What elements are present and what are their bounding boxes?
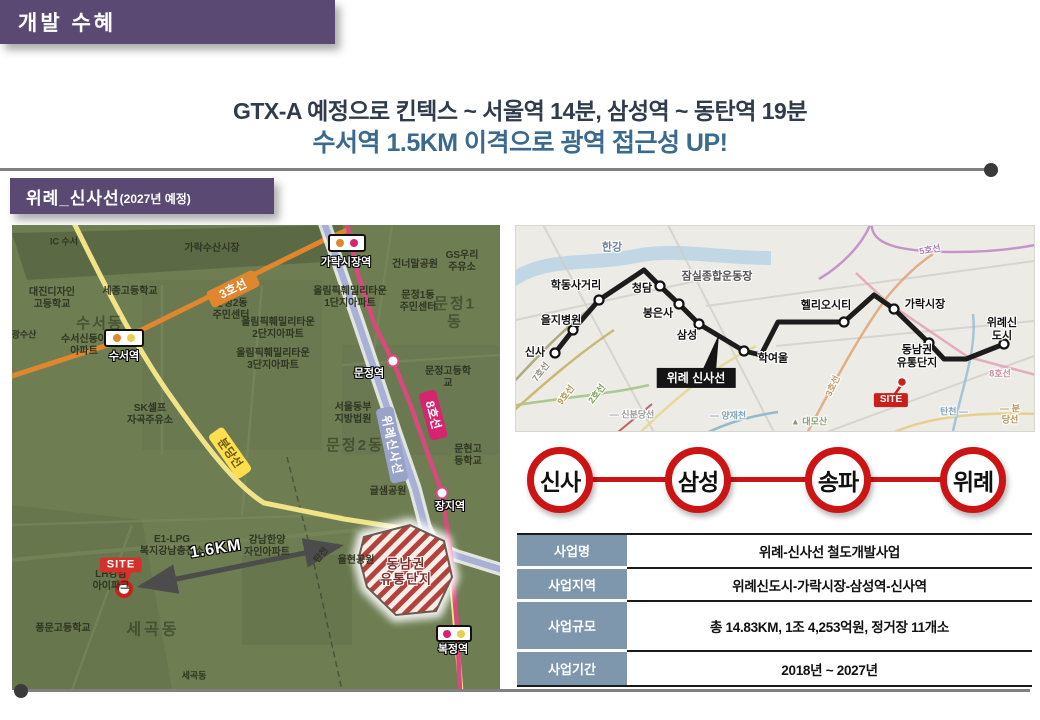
station-line-diagram: 신사 삼성 송파 위례 (515, 446, 1035, 518)
station-node-songpa: 송파 (805, 447, 871, 513)
top-divider (0, 168, 992, 171)
callout-arrow (702, 334, 719, 371)
top-divider-dot (984, 163, 998, 177)
table-row: 사업규모 총 14.83KM, 1조 4,253억원, 정거장 11개소 (517, 602, 1032, 652)
bottom-divider (14, 689, 1030, 692)
line-color-dot (457, 630, 465, 638)
line-color-dot (336, 239, 344, 247)
sub-banner-title: 위례_신사선 (26, 184, 120, 209)
station-badge (328, 234, 366, 252)
subway-route-map: 한강학동사거리을지병원신사청담봉은사삼성학여울잠실종합운동장헬리오시티가락시장위… (515, 225, 1035, 432)
station-badge (104, 329, 144, 347)
table-row: 사업명 위례-신사선 철도개발사업 (517, 535, 1032, 569)
table-row-label: 사업명 (517, 535, 627, 569)
station-connector-line (560, 477, 973, 482)
station-node-samseong: 삼성 (665, 447, 731, 513)
table-row-label: 사업지역 (517, 569, 627, 602)
table-row: 사업지역 위례신도시-가락시장-삼성역-신사역 (517, 569, 1032, 602)
sub-banner-subtitle: (2027년 예정) (120, 190, 191, 207)
headline-line1: GTX-A 예정으로 킨텍스 ~ 서울역 14분, 삼성역 ~ 동탄역 19분 (0, 97, 1040, 126)
section-banner-wirye-sinsa: 위례_신사선 (2027년 예정) (10, 178, 274, 214)
station-label: 송파 (818, 463, 858, 497)
section-banner-development: 개발 수혜 (0, 0, 335, 44)
line-color-dot (127, 334, 135, 342)
station-label: 신사 (540, 463, 580, 497)
street-map-graphic (12, 225, 500, 690)
table-row-label: 사업기간 (517, 652, 627, 685)
headline: GTX-A 예정으로 킨텍스 ~ 서울역 14분, 삼성역 ~ 동탄역 19분 … (0, 97, 1040, 159)
table-row: 사업기간 2018년 ~ 2027년 (517, 652, 1032, 685)
line-color-dot (350, 239, 358, 247)
banner-title: 개발 수혜 (18, 7, 116, 37)
table-row-value: 2018년 ~ 2027년 (627, 652, 1032, 685)
station-label: 삼성 (678, 463, 718, 497)
station-badge (436, 625, 472, 642)
table-row-value: 총 14.83KM, 1조 4,253억원, 정거장 11개소 (627, 602, 1032, 652)
subway-route-graphic (516, 226, 1034, 431)
table-row-value: 위례신도시-가락시장-삼성역-신사역 (627, 569, 1032, 602)
station-node-sinsa: 신사 (527, 447, 593, 513)
bottom-divider-dot (14, 684, 28, 698)
station-node-wirye: 위례 (940, 447, 1006, 513)
street-map: IC 수서가락수산시장대진디자인 고등학교세종고등학교수서동수서신동아 아파트광… (12, 225, 500, 690)
line-color-dot (443, 630, 451, 638)
table-row-label: 사업규모 (517, 602, 627, 652)
line-color-dot (113, 334, 121, 342)
project-info-table: 사업명 위례-신사선 철도개발사업 사업지역 위례신도시-가락시장-삼성역-신사… (517, 533, 1032, 687)
table-row-value: 위례-신사선 철도개발사업 (627, 535, 1032, 569)
station-label: 위례 (953, 463, 993, 497)
headline-line2: 수서역 1.5KM 이격으로 광역 접근성 UP! (0, 128, 1040, 159)
site-pin (898, 378, 907, 387)
han-river (516, 253, 771, 281)
